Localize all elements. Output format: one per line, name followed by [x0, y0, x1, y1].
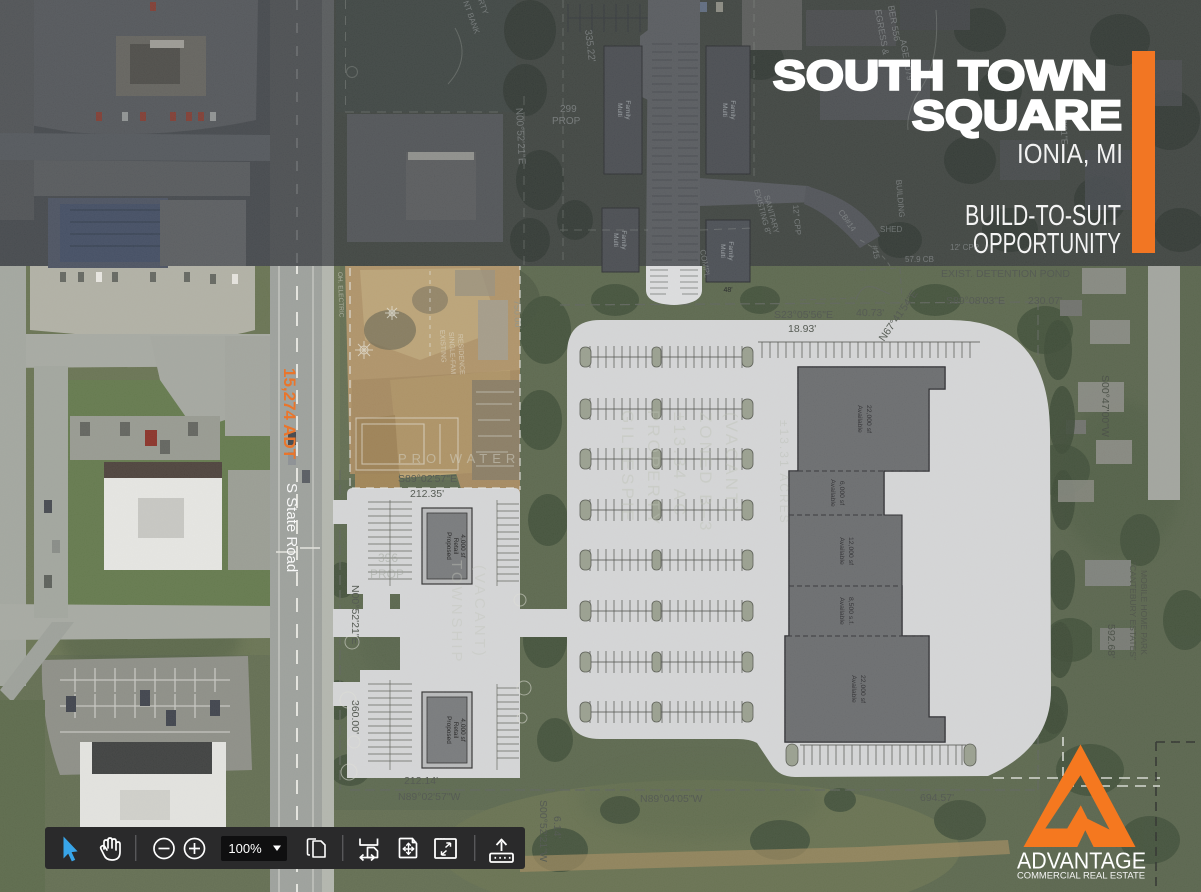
svg-text:100%: 100%: [228, 841, 262, 856]
svg-text:COMMERCIAL REAL ESTATE: COMMERCIAL REAL ESTATE: [1017, 871, 1145, 881]
svg-text:IONIA, MI: IONIA, MI: [1017, 138, 1123, 169]
svg-text:OPPORTUNITY: OPPORTUNITY: [973, 228, 1121, 260]
svg-text:SQUARE: SQUARE: [912, 92, 1122, 139]
